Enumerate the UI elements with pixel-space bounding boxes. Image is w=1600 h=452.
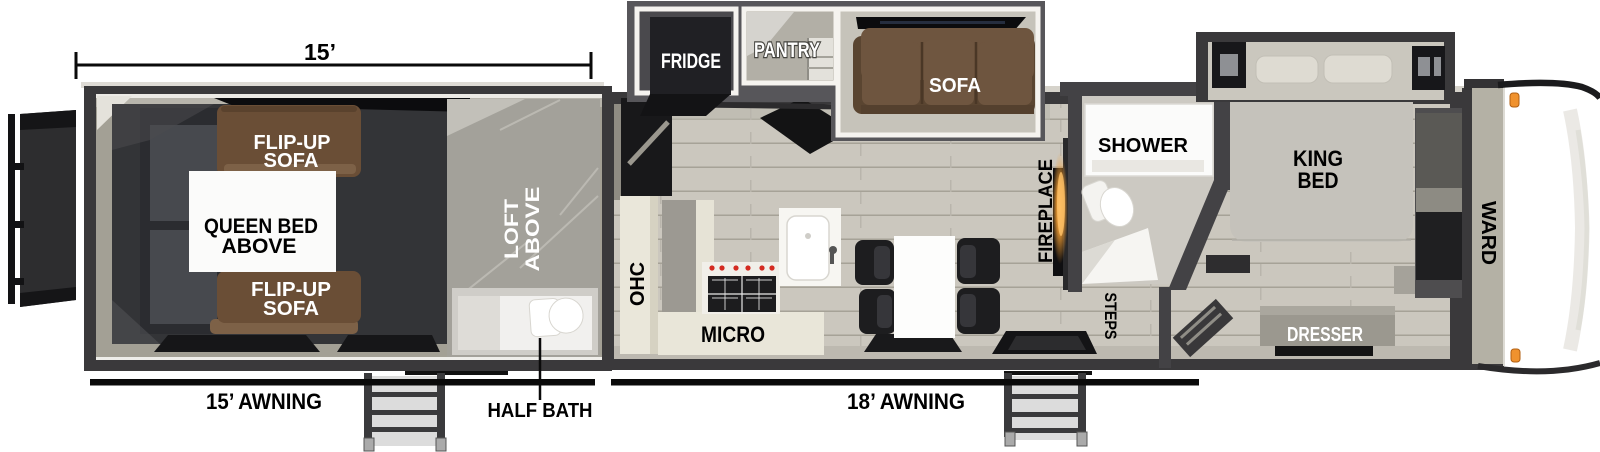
svg-text:FIREPLACE: FIREPLACE [1036,159,1057,263]
svg-text:15’ AWNING: 15’ AWNING [206,389,322,414]
svg-text:STEPS: STEPS [1101,293,1120,340]
svg-text:18’ AWNING: 18’ AWNING [847,389,965,414]
svg-text:ABOVE: ABOVE [522,187,544,272]
svg-text:WARD: WARD [1477,201,1499,265]
svg-text:MICRO: MICRO [701,322,765,347]
svg-text:PANTRY: PANTRY [754,39,820,62]
svg-text:SOFA: SOFA [929,75,981,97]
svg-text:SOFA: SOFA [263,298,319,320]
svg-text:HALF BATH: HALF BATH [488,400,593,422]
svg-text:SHOWER: SHOWER [1098,135,1189,157]
svg-text:OHC: OHC [627,262,649,306]
svg-text:FRIDGE: FRIDGE [661,49,721,73]
svg-text:SOFA: SOFA [264,150,319,172]
svg-text:LOFT: LOFT [501,199,523,259]
svg-text:ABOVE: ABOVE [222,234,297,258]
svg-text:15’: 15’ [304,39,336,65]
svg-text:BED: BED [1298,168,1339,193]
svg-text:DRESSER: DRESSER [1287,324,1363,346]
